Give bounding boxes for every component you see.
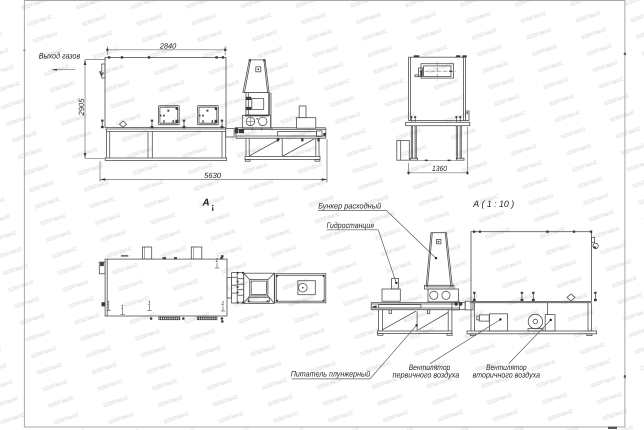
svg-text:вторичного воздуха: вторичного воздуха <box>473 370 541 379</box>
svg-text:2905: 2905 <box>77 98 86 117</box>
svg-text:Выход газов: Выход газов <box>39 52 81 61</box>
svg-text:Гидростанция: Гидростанция <box>327 221 375 230</box>
svg-text:1360: 1360 <box>432 164 448 173</box>
svg-text:1: 1 <box>148 301 151 307</box>
svg-text:первичного воздуха: первичного воздуха <box>393 370 460 379</box>
svg-text:2840: 2840 <box>159 41 177 50</box>
svg-text:А: А <box>202 198 210 209</box>
svg-text:5630: 5630 <box>204 171 222 180</box>
svg-text:1: 1 <box>221 301 224 307</box>
svg-text:1: 1 <box>215 258 218 264</box>
svg-text:1: 1 <box>107 301 110 307</box>
svg-text:Питатель плунжерный: Питатель плунжерный <box>291 369 371 378</box>
svg-text:1: 1 <box>121 305 124 311</box>
svg-text:Бункер расходный: Бункер расходный <box>318 202 382 211</box>
svg-text:А ( 1 : 10 ): А ( 1 : 10 ) <box>472 199 514 209</box>
